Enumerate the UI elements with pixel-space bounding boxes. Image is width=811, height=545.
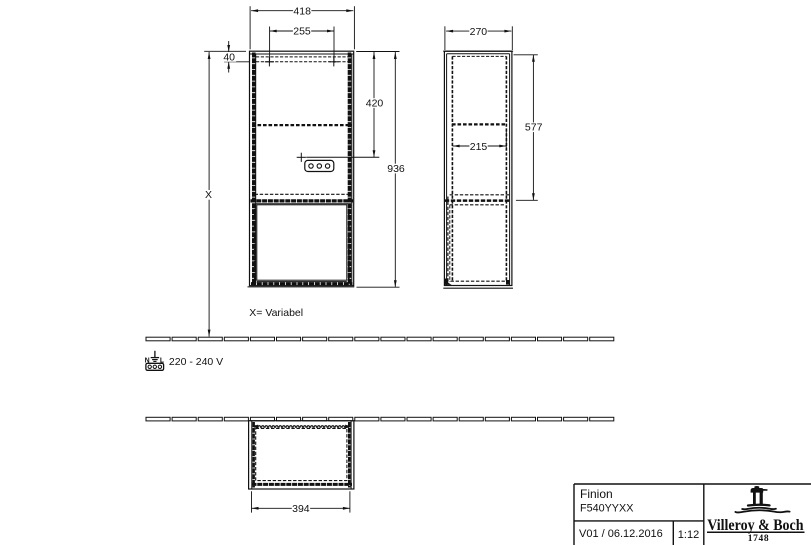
svg-text:936: 936 bbox=[387, 163, 405, 175]
svg-text:220 - 240 V: 220 - 240 V bbox=[169, 356, 223, 368]
svg-text:40: 40 bbox=[223, 51, 235, 63]
svg-text:215: 215 bbox=[470, 141, 488, 153]
svg-text:418: 418 bbox=[293, 5, 311, 17]
svg-text:F540YYXX: F540YYXX bbox=[580, 503, 633, 515]
svg-text:1748: 1748 bbox=[748, 534, 769, 544]
svg-text:577: 577 bbox=[525, 122, 543, 134]
svg-text:255: 255 bbox=[293, 26, 311, 38]
svg-text:Finion: Finion bbox=[580, 487, 613, 501]
svg-text:X: X bbox=[205, 189, 212, 201]
svg-text:X= Variabel: X= Variabel bbox=[249, 307, 303, 319]
svg-text:420: 420 bbox=[366, 97, 384, 109]
svg-text:1:12: 1:12 bbox=[678, 529, 699, 541]
svg-text:V01 / 06.12.2016: V01 / 06.12.2016 bbox=[579, 528, 663, 540]
svg-text:394: 394 bbox=[292, 503, 310, 515]
svg-text:270: 270 bbox=[470, 26, 488, 38]
